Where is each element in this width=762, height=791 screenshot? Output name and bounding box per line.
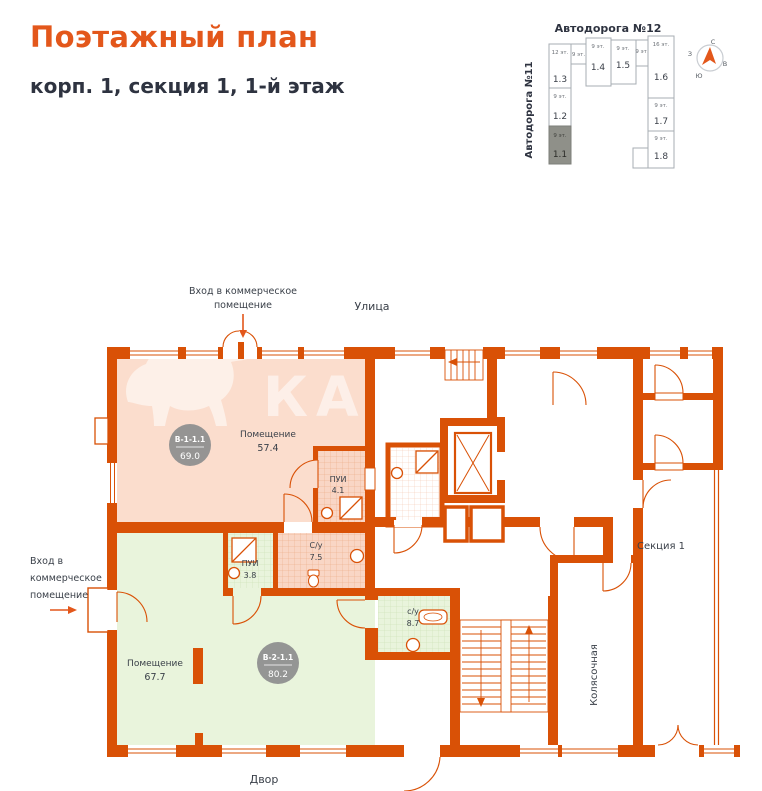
toilet-icon [308, 570, 319, 587]
svg-text:Вход в коммерческое: Вход в коммерческое [189, 286, 297, 297]
sink-icon [229, 568, 240, 579]
room1-area: 57.4 [257, 443, 278, 454]
pui41-label: ПУИ [330, 475, 347, 484]
unit-badge-1: В-1-1.1 69.0 [169, 424, 211, 466]
su75-label: С/у [309, 541, 322, 550]
sink-icon [322, 508, 333, 519]
shower-icon [340, 497, 362, 519]
sink-icon [407, 639, 420, 652]
duct-shaft [471, 507, 503, 541]
svg-text:80.2: 80.2 [268, 670, 288, 680]
shaft-niche [365, 468, 375, 490]
corridor-glazing [715, 470, 719, 745]
floor-plan-page: Поэтажный план корп. 1, секция 1, 1-й эт… [0, 0, 762, 791]
pui38-label: ПУИ [242, 559, 259, 568]
svg-text:69.0: 69.0 [180, 452, 200, 462]
pui38-area: 3.8 [244, 571, 257, 580]
duct-shaft [445, 507, 467, 541]
svg-text:помещение: помещение [30, 590, 88, 601]
main-staircase [460, 620, 548, 712]
pui41-area: 4.1 [332, 486, 345, 495]
room2-area: 67.7 [144, 672, 165, 683]
floor-plan-drawing: КАГА [0, 0, 762, 791]
svg-text:коммерческое: коммерческое [30, 573, 102, 584]
elevator [445, 426, 505, 541]
watermark-text: КАГА [263, 365, 460, 429]
room1-label: Помещение [240, 430, 296, 440]
stroller-room-label: Колясочная [589, 644, 600, 706]
svg-text:В-2-1.1: В-2-1.1 [263, 653, 293, 662]
section-label: Секция 1 [637, 541, 685, 552]
bathtub-icon [419, 610, 447, 624]
svg-text:В-1-1.1: В-1-1.1 [175, 435, 205, 444]
entry-porch [88, 588, 108, 632]
svg-text:Вход в: Вход в [30, 556, 64, 567]
entrance-top-note: Вход в коммерческое помещение [189, 286, 297, 338]
entrance-stair [445, 350, 483, 380]
yard-label: Двор [250, 773, 279, 786]
su87-label: с/у [407, 607, 419, 616]
unit-badge-2: В-2-1.1 80.2 [257, 642, 299, 684]
room2-label: Помещение [127, 659, 183, 669]
su87-area: 8.7 [407, 619, 420, 628]
sink-icon [392, 468, 403, 479]
wall-niche [95, 418, 108, 444]
svg-text:помещение: помещение [214, 300, 272, 311]
shower-icon [416, 451, 438, 473]
su75-area: 7.5 [310, 553, 323, 562]
sink-icon [351, 550, 364, 563]
street-label: Улица [354, 300, 389, 313]
